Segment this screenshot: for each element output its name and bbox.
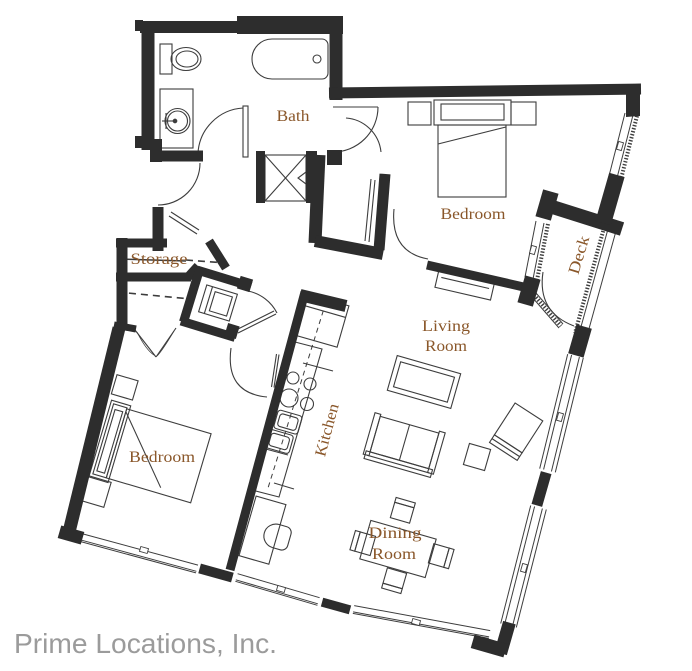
svg-text:Room: Room bbox=[425, 338, 468, 355]
svg-text:Prime Locations, Inc.: Prime Locations, Inc. bbox=[14, 628, 277, 659]
svg-text:Storage: Storage bbox=[131, 251, 188, 268]
svg-text:Room: Room bbox=[372, 546, 417, 563]
svg-text:Bath: Bath bbox=[277, 108, 310, 125]
svg-text:Dining: Dining bbox=[369, 525, 422, 542]
svg-text:Living: Living bbox=[422, 318, 470, 335]
svg-text:Bedroom: Bedroom bbox=[441, 206, 507, 223]
svg-text:Bedroom: Bedroom bbox=[129, 449, 196, 466]
